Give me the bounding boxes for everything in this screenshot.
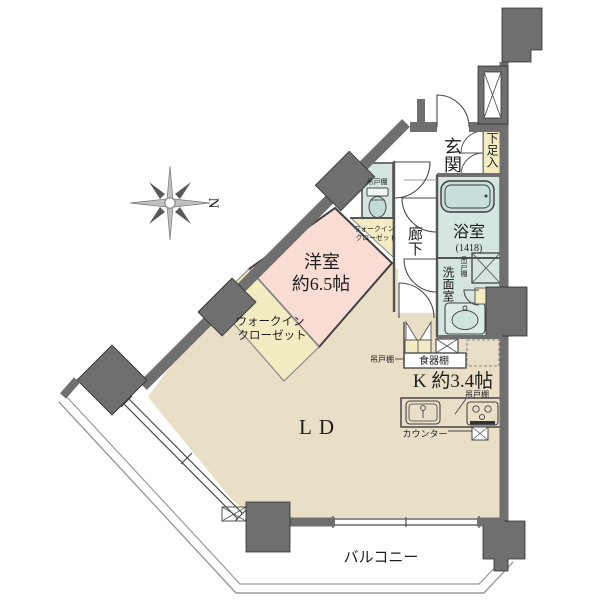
small-closet-label-1: ウォークイン [354,225,395,233]
western-room-size-label: 約6.5帖 [292,274,351,294]
north-label: N [205,198,221,209]
balcony-label: バルコニー [344,550,419,566]
washroom-shelf-label: 吊戸棚 [460,256,468,278]
washbasin-icon [445,303,485,334]
entrance-label: 玄関 [442,137,462,173]
small-closet-label-2: クローゼット [356,233,397,242]
walk-in-closet-label-1: ウォークイン [236,315,305,328]
entrance-door [437,95,469,127]
kitchen-shelf-label: 吊戸棚 [370,354,394,364]
kitchen-label: K 約3.4帖 [413,370,493,392]
compass-rose: N [130,166,221,240]
pillar-bottom-middle [246,502,290,552]
floor-plan-drawing: N 玄関 下足入 浴室 (1418) 廊下 洗面室 吊戸棚 吊戸棚 吊戸棚 吊戸… [0,0,600,600]
toilet-icon [367,188,388,218]
walk-in-closet-label-2: クローゼット [238,329,307,342]
pillar-mid-right [486,287,527,336]
toilet-shelf-label: 吊戸棚 [367,177,388,186]
bathroom-label: 浴室 [453,223,485,241]
washroom-label: 洗面室 [441,266,455,302]
bathroom-size-label: (1418) [456,243,483,254]
living-dining-label: LD [299,415,341,439]
floor-plan-page: N 玄関 下足入 浴室 (1418) 廊下 洗面室 吊戸棚 吊戸棚 吊戸棚 吊戸… [0,0,600,600]
counter-label: カウンター [402,429,447,439]
pillar-left-diamond [77,345,147,415]
pillar-bottom-right [483,521,525,571]
washroom-door [404,259,437,292]
bathtub-icon [441,181,494,212]
corridor-label: 廊下 [406,226,423,256]
cupboard-label: 食器棚 [419,354,449,367]
shoe-cabinet-doors [461,131,483,175]
western-room-label: 洋室 [304,252,340,272]
pillar-top-right [502,8,542,62]
ld-door [399,283,434,318]
shoe-cabinet-label: 下足入 [485,132,499,168]
